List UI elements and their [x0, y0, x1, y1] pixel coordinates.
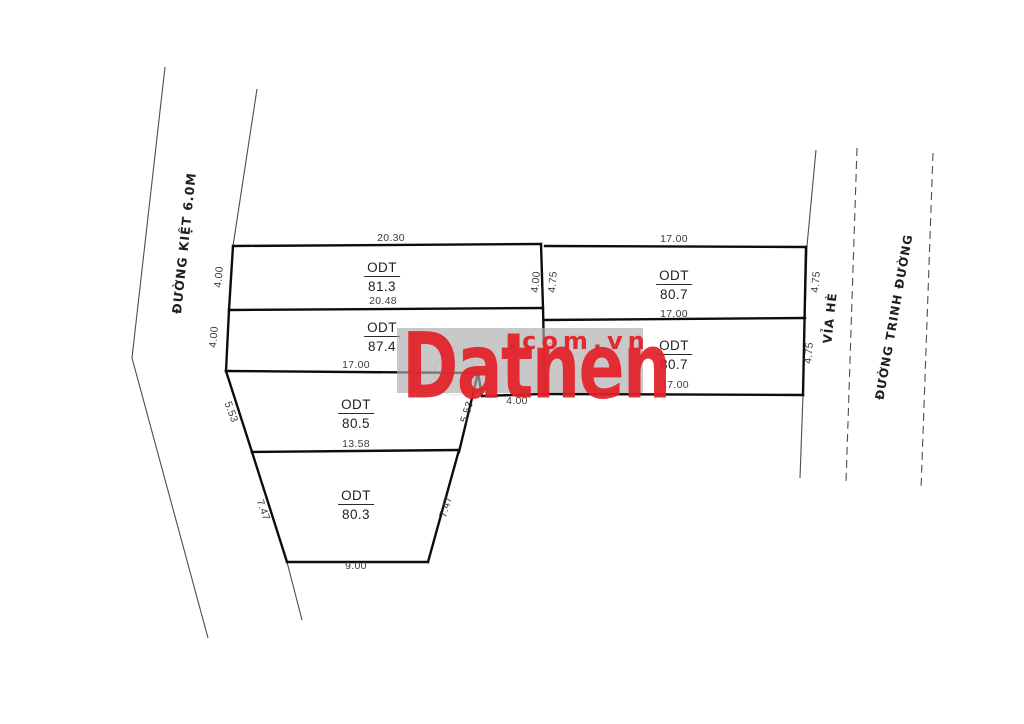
- plot-type: ODT: [338, 488, 374, 505]
- plot-label-80-3: ODT 80.3: [338, 488, 374, 522]
- dim-p1-right: 4.00: [529, 271, 543, 294]
- right-road-lines: [800, 148, 933, 490]
- dim-p1-left: 4.00: [212, 266, 226, 289]
- plot-type: ODT: [338, 397, 374, 414]
- plot-area: 81.3: [364, 279, 400, 294]
- dim-r1-left: 4.75: [546, 271, 560, 294]
- dim-p3-bottom: 13.58: [342, 438, 370, 450]
- plot-type: ODT: [364, 260, 400, 277]
- left-road-lines: [132, 67, 302, 638]
- plot-type: ODT: [656, 268, 692, 285]
- land-plot-diagram: ĐƯỜNG KIỆT 6.0M VỈA HÈ ĐƯỜNG TRINH ĐƯỜNG…: [0, 0, 1024, 724]
- plot-label-80-7-top: ODT 80.7: [656, 268, 692, 302]
- dim-p1-top: 20.30: [377, 232, 405, 244]
- plot-area: 80.3: [338, 507, 374, 522]
- plot-area: 80.7: [656, 287, 692, 302]
- dim-r1-right: 4.75: [809, 271, 823, 294]
- dim-p4-bottom: 9.00: [345, 560, 367, 572]
- plot-label-87-4: ODT 87.4: [364, 320, 400, 354]
- dim-right-top: 17.00: [660, 233, 688, 245]
- dim-p1-bottom: 20.48: [369, 295, 397, 307]
- plot-label-80-5: ODT 80.5: [338, 397, 374, 431]
- building-icon: [0, 0, 30, 32]
- dim-p2-left: 4.00: [207, 326, 221, 349]
- plot-area: 80.5: [338, 416, 374, 431]
- plot-type: ODT: [364, 320, 400, 337]
- plot-label-81-3: ODT 81.3: [364, 260, 400, 294]
- watermark-brand: Datnen: [402, 321, 670, 412]
- plot-area: 87.4: [364, 339, 400, 354]
- dim-p2-bottom: 17.00: [342, 359, 370, 371]
- dim-r2-right: 4.75: [802, 342, 816, 365]
